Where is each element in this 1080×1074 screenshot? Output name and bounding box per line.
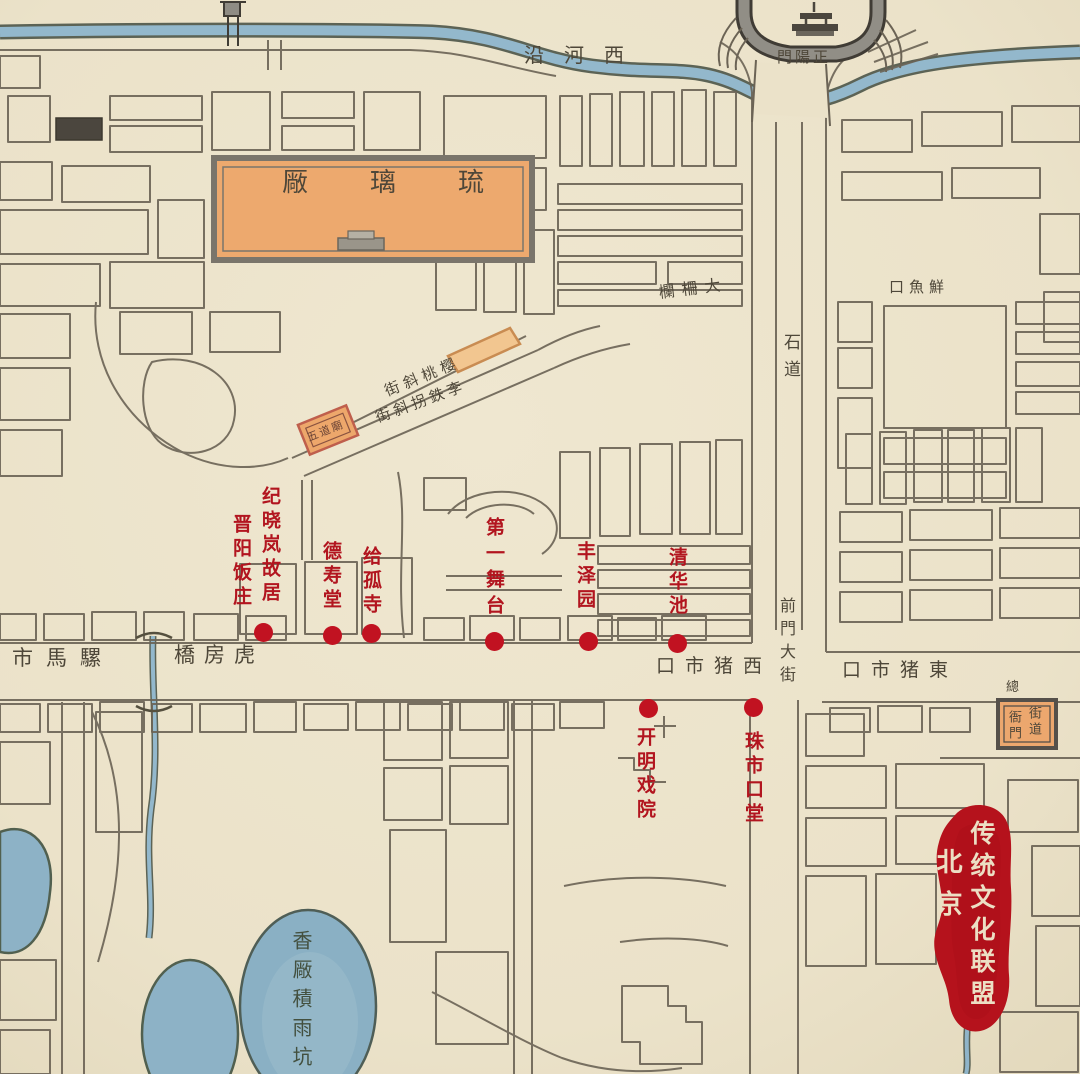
street-label-shidao: 石道 — [782, 333, 799, 387]
poi-label-fengzeyuan: 丰泽园 — [575, 541, 594, 613]
building-label-yamen-outer: 總 — [1006, 680, 1019, 693]
poi-label-jinyang-fanzhuang: 晋阳饭庄 — [231, 514, 250, 610]
poi-label-deshoutang: 德寿堂 — [321, 541, 340, 613]
water-label-xiangchang-pond: 香厰積雨坑 — [290, 930, 310, 1074]
poi-dot-diyi-wutai — [485, 632, 504, 651]
map-canvas — [0, 0, 1080, 1074]
street-label-qianmen-dajie: 前門大街 — [777, 597, 793, 689]
seal-text-right-column: 传统文化联盟 — [968, 820, 993, 1012]
poi-label-jixiaolan-guju: 纪晓岚故居 — [260, 486, 279, 606]
poi-dot-geigusi — [362, 624, 381, 643]
building-label-yamen-left-column: 衙門 — [1008, 710, 1021, 742]
poi-dot-qinghuachi — [668, 634, 687, 653]
poi-label-qinghuachi: 清华池 — [667, 547, 686, 619]
antique-beijing-map: 沿河西 門陽正 厰璃琉 欄柵大 口魚鮮 石道 前門大街 市馬騾 橋房虎 口市猪西… — [0, 0, 1080, 1074]
seal-text-left-column: 北京 — [934, 848, 960, 932]
building-label-liulichang: 厰璃琉 — [282, 170, 546, 196]
street-label-hufangqiao: 橋房虎 — [174, 645, 264, 666]
street-label-xiheyan: 沿河西 — [524, 46, 644, 66]
poi-label-zhushikou-tang: 珠市口堂 — [743, 731, 762, 827]
building-label-yamen-right-column: 街道 — [1028, 706, 1041, 738]
poi-label-geigusi: 给孤寺 — [361, 546, 380, 618]
street-label-dong-zhushikou: 口市猪東 — [842, 661, 958, 680]
solid-ink-block — [56, 118, 102, 140]
parchment-background — [0, 0, 1080, 1074]
street-label-zhengyangmen: 門陽正 — [777, 51, 831, 66]
poi-dot-zhushikou-tang — [744, 698, 763, 717]
street-label-xianyukou: 口魚鮮 — [889, 281, 949, 296]
poi-dot-deshoutang — [323, 626, 342, 645]
poi-dot-fengzeyuan — [579, 632, 598, 651]
poi-label-diyi-wutai: 第一舞台 — [484, 517, 503, 621]
street-label-xi-zhushikou: 口市猪西 — [656, 657, 772, 676]
poi-dot-jixiaolan — [254, 623, 273, 642]
poi-label-kaiming-xiyuan: 开明戏院 — [635, 727, 654, 823]
street-label-luomashi: 市馬騾 — [12, 648, 114, 669]
poi-dot-kaiming-xiyuan — [639, 699, 658, 718]
